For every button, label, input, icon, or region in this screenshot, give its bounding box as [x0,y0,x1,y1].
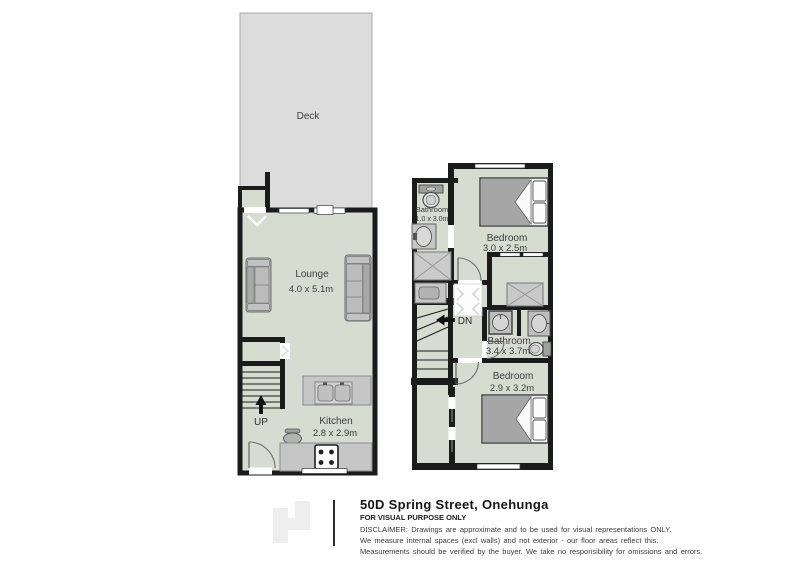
floorplan-page: Deck [0,0,800,565]
shower-icon [414,252,451,280]
disclaimer: DISCLAIMER: Drawings are approximate and… [360,525,720,557]
purpose-note: FOR VISUAL PURPOSE ONLY [360,513,720,522]
footer: 50D Spring Street, Onehunga FOR VISUAL P… [360,497,720,557]
window [302,469,347,474]
closet-door-panel [449,427,456,440]
kettle-icon [284,429,302,444]
bathroom-dims: 3.4 x 3.7m [486,346,530,357]
vanity-icon [415,283,446,303]
disclaimer-line: We measure internal spaces (excl walls) … [360,536,720,547]
ensuite-door-opening [448,225,454,248]
property-address: 50D Spring Street, Onehunga [360,497,720,512]
sink-icon [489,311,512,334]
stove-icon [315,445,338,469]
toilet-icon [529,342,551,356]
deck-area: Deck [240,13,372,212]
closet-door-panel [449,397,456,409]
ensuite-label: Bathroom [416,205,449,214]
bed-icon [482,395,548,443]
sofa-icon [246,258,271,312]
bedroom2-dims: 2.9 x 3.2m [490,383,534,394]
lounge-label: Lounge [295,269,329,280]
sink-icon [528,311,550,336]
sink-icon [412,224,436,249]
dn-label: DN [458,316,472,327]
slider-door-icon [317,206,333,215]
alcove-door-opening [244,207,266,213]
ground-floor-plan: Deck [230,5,380,480]
ensuite-dims: 1.0 x 3.0m [416,216,449,223]
wardrobe-icon [507,283,543,306]
sink-icon [315,382,352,404]
lounge-dims: 4.0 x 5.1m [289,284,333,295]
deck-wall-stub [265,172,270,213]
disclaimer-line: DISCLAIMER: Drawings are approximate and… [360,525,720,536]
footer-divider [333,500,335,546]
upper-floor-plan: DN Bathroom 1.0 x 3.0m [405,160,560,475]
brand-logo [268,500,323,555]
window [279,209,309,214]
bedroom1-dims: 3.0 x 2.5m [483,243,527,254]
disclaimer-line: Measurements should be verified by the b… [360,547,720,558]
up-label: UP [254,417,268,428]
sofa-icon [345,255,371,321]
bed-icon [480,178,548,226]
linen-cupboard [454,284,482,316]
kitchen-label: Kitchen [319,416,352,427]
bedroom2-label: Bedroom [493,371,534,382]
window [475,164,525,168]
window [477,464,520,469]
deck-label: Deck [297,111,321,122]
kitchen-dims: 2.8 x 2.9m [313,428,357,439]
